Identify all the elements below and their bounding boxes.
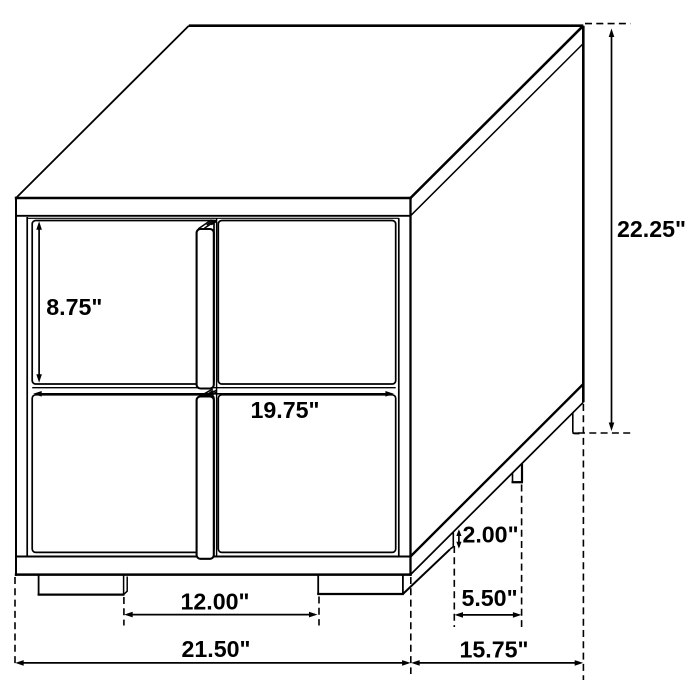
svg-text:22.25": 22.25": [617, 216, 686, 242]
svg-text:12.00": 12.00": [180, 589, 249, 615]
svg-text:19.75": 19.75": [250, 397, 319, 423]
svg-text:21.50": 21.50": [181, 636, 250, 662]
svg-text:5.50": 5.50": [461, 585, 517, 611]
svg-text:15.75": 15.75": [459, 637, 528, 663]
svg-text:8.75": 8.75": [46, 294, 102, 320]
svg-text:2.00": 2.00": [462, 521, 518, 547]
